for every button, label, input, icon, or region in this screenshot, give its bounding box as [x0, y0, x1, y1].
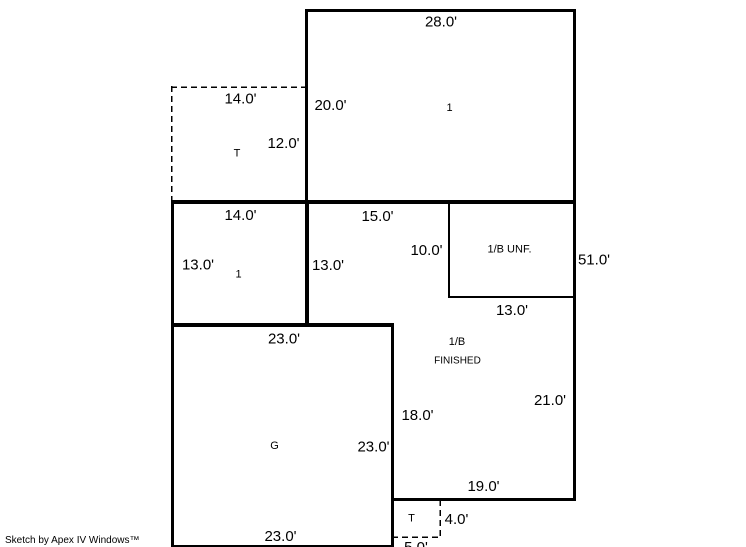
svg-text:5.0': 5.0' — [404, 539, 428, 547]
svg-text:12.0': 12.0' — [267, 135, 299, 152]
svg-text:4.0': 4.0' — [445, 511, 469, 528]
svg-text:20.0': 20.0' — [314, 97, 346, 114]
svg-text:G: G — [270, 440, 279, 452]
svg-text:1: 1 — [235, 269, 241, 281]
svg-text:21.0': 21.0' — [534, 392, 566, 409]
svg-text:14.0': 14.0' — [224, 91, 256, 108]
svg-text:23.0': 23.0' — [264, 528, 296, 545]
svg-text:15.0': 15.0' — [361, 208, 393, 225]
svg-text:Sketch by Apex IV Windows™: Sketch by Apex IV Windows™ — [5, 535, 140, 546]
svg-text:1/B: 1/B — [449, 336, 466, 348]
svg-text:13.0': 13.0' — [182, 257, 214, 274]
svg-text:T: T — [408, 513, 415, 525]
svg-text:13.0': 13.0' — [496, 302, 528, 319]
svg-text:51.0': 51.0' — [578, 252, 610, 269]
svg-text:FINISHED: FINISHED — [434, 356, 481, 367]
svg-text:23.0': 23.0' — [268, 331, 300, 348]
svg-text:28.0': 28.0' — [425, 14, 457, 31]
svg-text:23.0': 23.0' — [357, 439, 389, 456]
svg-text:1: 1 — [446, 102, 452, 114]
svg-text:14.0': 14.0' — [224, 207, 256, 224]
svg-text:13.0': 13.0' — [312, 257, 344, 274]
svg-text:10.0': 10.0' — [410, 242, 442, 259]
svg-text:19.0': 19.0' — [467, 478, 499, 495]
svg-text:T: T — [234, 148, 241, 160]
svg-text:18.0': 18.0' — [401, 407, 433, 424]
svg-text:1/B UNF.: 1/B UNF. — [487, 244, 531, 256]
